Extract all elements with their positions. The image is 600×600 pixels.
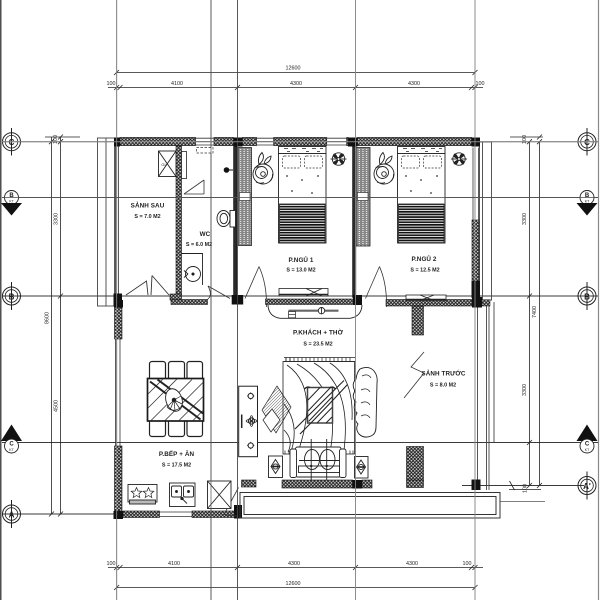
- svg-text:100: 100: [523, 484, 529, 493]
- svg-text:A: A: [9, 510, 15, 519]
- svg-text:SẢNH SAU: SẢNH SAU: [131, 201, 165, 210]
- svg-text:12600: 12600: [286, 66, 301, 72]
- svg-text:S = 23.5 M2: S = 23.5 M2: [303, 342, 332, 348]
- svg-text:4100: 4100: [168, 561, 180, 567]
- svg-text:4300: 4300: [290, 81, 302, 87]
- svg-text:8600: 8600: [45, 312, 51, 324]
- svg-text:S = 7.0 M2: S = 7.0 M2: [134, 214, 160, 220]
- svg-text:3300: 3300: [54, 213, 60, 225]
- svg-text:S = 17.5 M2: S = 17.5 M2: [162, 463, 191, 469]
- svg-text:C: C: [585, 442, 590, 448]
- svg-text:4300: 4300: [406, 561, 418, 567]
- svg-text:100: 100: [463, 561, 472, 567]
- svg-text:100: 100: [522, 135, 528, 144]
- svg-text:4500: 4500: [54, 400, 60, 412]
- svg-text:100: 100: [107, 81, 116, 87]
- svg-text:B: B: [584, 292, 590, 301]
- svg-text:4100: 4100: [171, 81, 183, 87]
- svg-text:B: B: [9, 292, 15, 301]
- svg-text:C: C: [584, 138, 590, 147]
- svg-text:P.NGỦ 2: P.NGỦ 2: [411, 254, 436, 263]
- svg-text:S = 6.0 M2: S = 6.0 M2: [186, 242, 212, 248]
- svg-text:3300: 3300: [522, 213, 528, 225]
- svg-text:12600: 12600: [286, 581, 301, 587]
- svg-text:GL: GL: [161, 162, 167, 167]
- svg-text:7400: 7400: [532, 306, 538, 318]
- svg-text:P.KHÁCH + THỜ: P.KHÁCH + THỜ: [293, 328, 344, 337]
- svg-text:3300: 3300: [522, 384, 528, 396]
- svg-text:C: C: [9, 138, 15, 147]
- svg-text:100: 100: [476, 81, 485, 87]
- svg-text:WC: WC: [200, 231, 211, 238]
- svg-text:SẢNH TRƯỚC: SẢNH TRƯỚC: [421, 369, 465, 378]
- svg-text:B: B: [9, 193, 14, 199]
- svg-text:C: C: [9, 442, 14, 448]
- svg-text:4300: 4300: [408, 81, 420, 87]
- svg-text:S = 13.0 M2: S = 13.0 M2: [286, 268, 315, 274]
- svg-text:100: 100: [53, 135, 59, 144]
- svg-text:A': A': [583, 482, 591, 491]
- svg-text:B: B: [585, 193, 590, 199]
- svg-text:4300: 4300: [288, 561, 300, 567]
- svg-text:S = 8.0 M2: S = 8.0 M2: [430, 383, 456, 389]
- svg-text:S = 12.5 M2: S = 12.5 M2: [410, 268, 439, 274]
- svg-text:100: 100: [107, 561, 116, 567]
- svg-text:P.NGỦ 1: P.NGỦ 1: [288, 255, 313, 264]
